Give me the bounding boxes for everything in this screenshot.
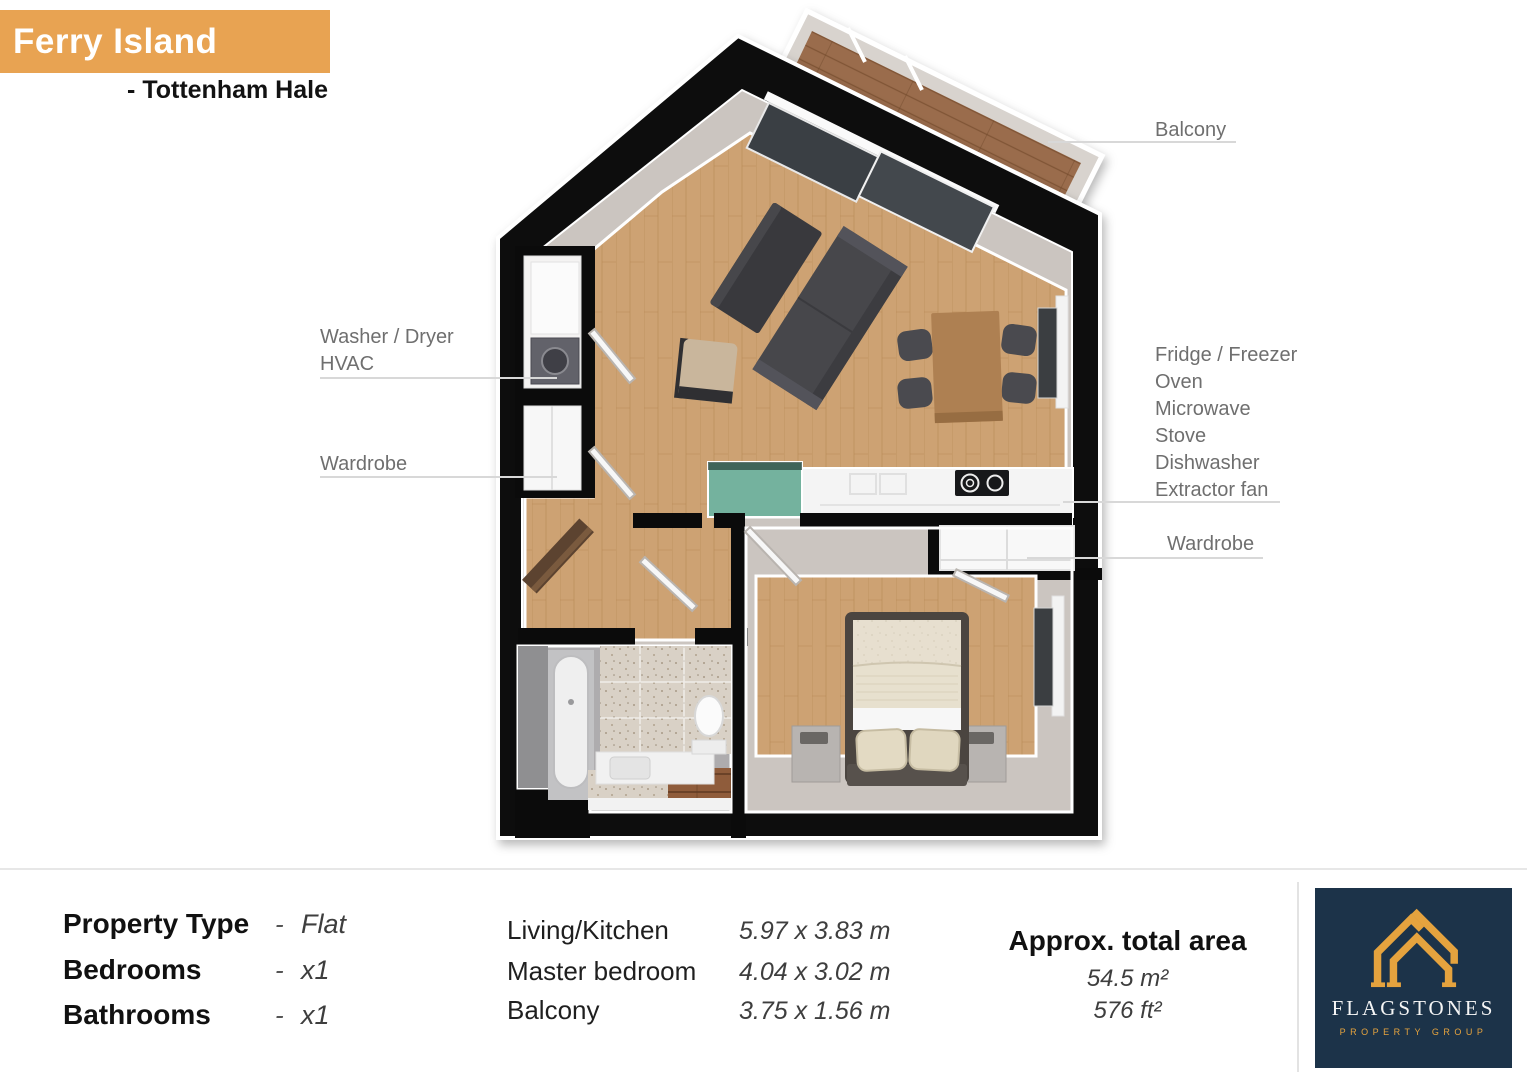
pillow-left (856, 729, 907, 772)
bedrooms-row: Bedrooms - x1 (63, 954, 330, 986)
label-hvac: HVAC (320, 351, 454, 378)
kitchen-counter (802, 468, 1073, 517)
total-area-title: Approx. total area (1000, 925, 1255, 957)
label-washer-dryer: Washer / Dryer HVAC (320, 324, 454, 378)
living-kitchen-dim-row: Living/Kitchen 5.97 x 3.83 m (507, 915, 890, 946)
total-area-box: Approx. total area 54.5 m² 576 ft² (1000, 925, 1255, 1027)
label-appliance-item: Stove (1155, 423, 1297, 450)
header-banner: Ferry Island (0, 10, 330, 73)
bathrooms-row: Bathrooms - x1 (63, 999, 330, 1031)
label-wardrobe-right: Wardrobe (1167, 531, 1254, 558)
flagstones-logo: FLAGSTONES PROPERTY GROUP (1315, 888, 1512, 1068)
label-appliances: Fridge / Freezer Oven Microwave Stove Di… (1155, 342, 1297, 504)
separator: - (275, 955, 301, 986)
logo-tagline: PROPERTY GROUP (1340, 1027, 1488, 1037)
total-area-imperial: 576 ft² (1000, 995, 1255, 1027)
master-bedroom-name: Master bedroom (507, 956, 739, 987)
label-appliance-item: Extractor fan (1155, 477, 1297, 504)
vertical-divider (1297, 882, 1299, 1072)
wardrobe-right-niche (940, 526, 1074, 570)
dining-chair (896, 328, 934, 362)
label-appliance-item: Dishwasher (1155, 450, 1297, 477)
dining-table (931, 311, 1003, 423)
bathroom (518, 646, 731, 812)
property-type-value: Flat (301, 909, 346, 940)
total-area-metric: 54.5 m² (1000, 963, 1255, 995)
bedroom-tv (1034, 596, 1064, 716)
dining-chair (1001, 371, 1038, 404)
bathtub (554, 656, 588, 788)
page-subtitle: - Tottenham Hale (0, 76, 328, 105)
label-wardrobe-left: Wardrobe (320, 451, 407, 478)
bedrooms-label: Bedrooms (63, 954, 275, 986)
armchair (674, 338, 738, 404)
kitchen (708, 462, 1073, 517)
balcony-dim-row: Balcony 3.75 x 1.56 m (507, 995, 890, 1026)
toilet (692, 696, 726, 754)
separator: - (275, 1000, 301, 1031)
label-appliance-item: Fridge / Freezer (1155, 342, 1297, 369)
sink-basin (610, 757, 650, 779)
property-type-row: Property Type - Flat (63, 908, 346, 940)
living-kitchen-size: 5.97 x 3.83 m (739, 917, 890, 946)
logo-name: FLAGSTONES (1332, 996, 1496, 1021)
page-title: Ferry Island (0, 10, 330, 73)
cooktop-icon (955, 470, 1009, 496)
bathrooms-value: x1 (301, 1000, 330, 1031)
balcony-size: 3.75 x 1.56 m (739, 997, 890, 1026)
property-type-label: Property Type (63, 908, 275, 940)
kitchen-island (708, 462, 802, 517)
bedrooms-value: x1 (301, 955, 330, 986)
hvac-unit (531, 262, 579, 334)
label-appliance-item: Oven (1155, 369, 1297, 396)
master-bedroom-dim-row: Master bedroom 4.04 x 3.02 m (507, 956, 890, 987)
flagstones-logo-icon (1362, 902, 1466, 988)
pillow-right (909, 729, 960, 772)
bathrooms-label: Bathrooms (63, 999, 275, 1031)
master-bedroom-size: 4.04 x 3.02 m (739, 958, 890, 987)
washer-dryer-closet (515, 246, 595, 398)
separator: - (275, 909, 301, 940)
dining-chair (1000, 323, 1038, 357)
bed (845, 612, 969, 786)
label-balcony: Balcony (1155, 117, 1226, 144)
label-washer-dryer-line1: Washer / Dryer (320, 324, 454, 351)
dining-chair (897, 376, 934, 409)
wardrobe-left-closet (515, 398, 595, 498)
living-kitchen-name: Living/Kitchen (507, 915, 739, 946)
horizontal-divider (0, 868, 1527, 870)
living-tv (1038, 296, 1068, 408)
balcony-name: Balcony (507, 995, 739, 1026)
label-appliance-item: Microwave (1155, 396, 1297, 423)
